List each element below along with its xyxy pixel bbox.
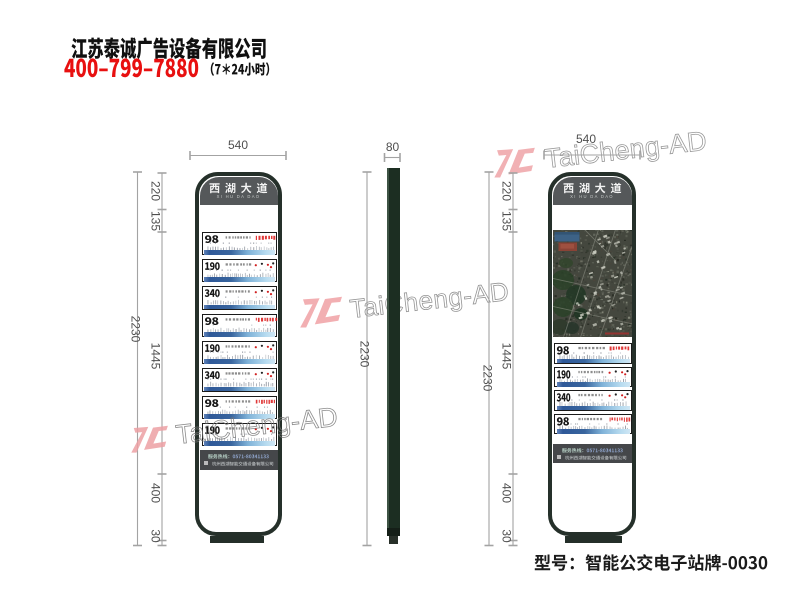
- svg-text:135: 135: [500, 211, 514, 231]
- svg-text:80: 80: [386, 140, 400, 154]
- svg-text:400: 400: [149, 483, 163, 503]
- svg-text:2230: 2230: [481, 365, 495, 392]
- svg-text:2230: 2230: [358, 341, 372, 368]
- svg-text:30: 30: [500, 529, 514, 543]
- svg-text:2230: 2230: [129, 316, 143, 343]
- svg-text:1445: 1445: [149, 343, 163, 370]
- svg-text:1445: 1445: [500, 343, 514, 370]
- svg-text:220: 220: [149, 181, 163, 201]
- svg-text:540: 540: [228, 138, 248, 152]
- svg-text:540: 540: [576, 132, 596, 146]
- svg-text:400: 400: [500, 483, 514, 503]
- svg-text:30: 30: [149, 529, 163, 543]
- svg-text:135: 135: [149, 211, 163, 231]
- svg-text:220: 220: [500, 181, 514, 201]
